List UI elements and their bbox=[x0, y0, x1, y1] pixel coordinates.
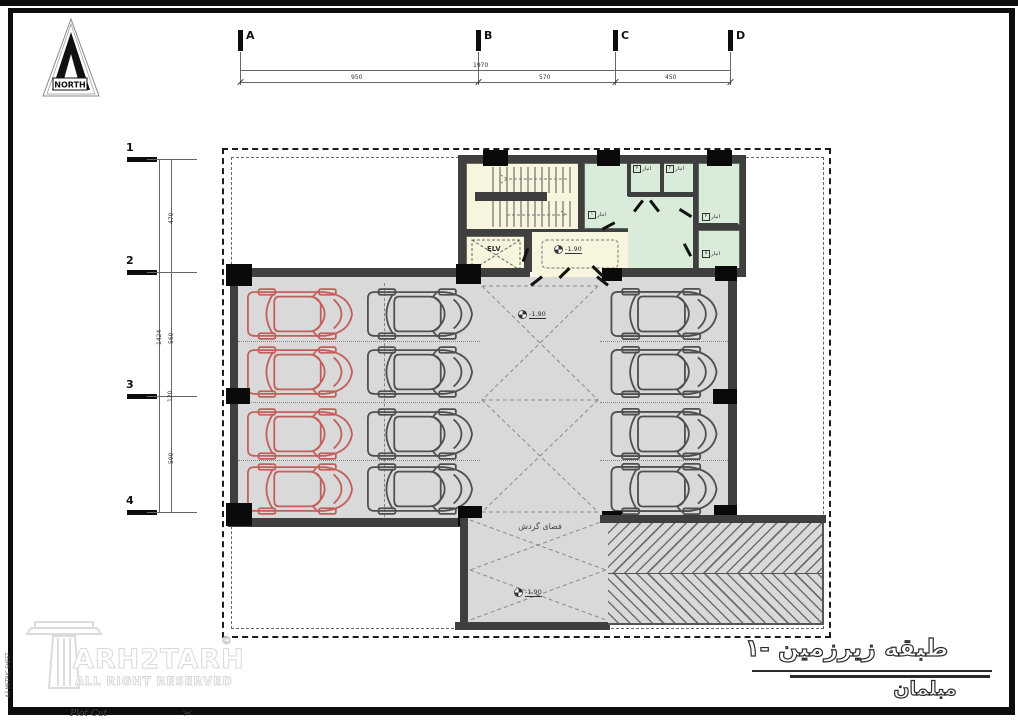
circulation-west-wall bbox=[460, 518, 468, 630]
north-label: NORTH bbox=[54, 81, 85, 90]
stair-handrail bbox=[475, 192, 547, 201]
grid-letter-c: C bbox=[621, 29, 629, 42]
storage-room-label: انبار ۳ bbox=[666, 165, 684, 173]
dim-seg-ab: 950 bbox=[351, 74, 362, 81]
dim-minor: 120 bbox=[167, 391, 174, 402]
grid-number-1: 1 bbox=[126, 141, 134, 154]
car-red bbox=[244, 408, 356, 460]
copyright-icon: © bbox=[221, 634, 232, 647]
storage-room-number: ۴ bbox=[702, 213, 710, 221]
storage-room-number: ۵ bbox=[702, 250, 710, 258]
level-marker-circulation: -1.90 bbox=[514, 588, 542, 597]
sheet-top-strip bbox=[0, 0, 1018, 6]
circulation-label: فضای گردش bbox=[500, 522, 580, 531]
dim-seg-cd: 450 bbox=[665, 74, 676, 81]
storage-room-label: انبار ۲ bbox=[633, 165, 651, 173]
ext-line bbox=[147, 159, 197, 160]
drawing-sheet: Plot Cut ✂ A3 METRIC SHEET NORTH A B C D… bbox=[0, 0, 1018, 720]
watermark: ARH2TARH © ALL RIGHT RESERVED bbox=[25, 612, 255, 696]
column bbox=[456, 264, 481, 284]
core-west-wall bbox=[458, 155, 466, 277]
car-red bbox=[244, 346, 356, 398]
level-marker-lobby: -1.90 bbox=[554, 245, 582, 254]
north-arrow: NORTH bbox=[40, 16, 102, 100]
level-value: -1.90 bbox=[565, 245, 582, 254]
storage-room-name: انبار bbox=[597, 212, 606, 218]
storage-room-label: انبار ۵ bbox=[702, 250, 720, 258]
scissors-icon: ✂ bbox=[183, 707, 192, 720]
level-marker-aisle: -1.90 bbox=[518, 310, 546, 319]
level-icon bbox=[518, 310, 527, 319]
grid-marker-bar-a bbox=[238, 30, 243, 51]
column bbox=[597, 150, 620, 166]
grid-number-2: 2 bbox=[126, 254, 134, 267]
car-gray bbox=[605, 346, 723, 398]
car-gray bbox=[605, 463, 723, 515]
stair-room bbox=[466, 163, 580, 231]
garage-north-wall-left bbox=[230, 268, 530, 277]
ext-line bbox=[147, 272, 197, 273]
dim-seg-23: 560 bbox=[168, 333, 175, 344]
garage-south-wall bbox=[228, 518, 480, 527]
column bbox=[707, 150, 732, 166]
storage-room-name: انبار bbox=[711, 214, 720, 220]
dim-seg-bc: 570 bbox=[539, 74, 550, 81]
car-gray bbox=[364, 408, 476, 460]
storage-room-number: ۱ bbox=[588, 211, 596, 219]
wall bbox=[698, 223, 738, 230]
ramp-hatch-upper bbox=[608, 523, 822, 574]
column bbox=[713, 389, 737, 404]
ramp-hatch-lower bbox=[608, 574, 822, 623]
level-value: -1.90 bbox=[529, 310, 546, 319]
storage-room-label: انبار ۱ bbox=[588, 211, 606, 219]
dim-total-left: 1424 bbox=[156, 330, 163, 345]
grid-marker-bar-c bbox=[613, 30, 618, 51]
storage-room-name: انبار bbox=[711, 251, 720, 257]
storage-room-name: انبار bbox=[642, 166, 651, 172]
ext-line bbox=[147, 512, 197, 513]
car-gray bbox=[364, 346, 476, 398]
watermark-tagline: ALL RIGHT RESERVED bbox=[75, 674, 233, 688]
circulation-space bbox=[468, 518, 608, 622]
level-value: -1.90 bbox=[525, 588, 542, 597]
grid-marker-bar-d bbox=[728, 30, 733, 51]
column bbox=[226, 264, 252, 286]
sheet-side-note: A3 METRIC SHEET bbox=[6, 652, 12, 697]
storage-room-label: انبار ۴ bbox=[702, 213, 720, 221]
car-gray bbox=[605, 288, 723, 340]
column bbox=[226, 388, 250, 404]
storage-room-number: ۲ bbox=[633, 165, 641, 173]
circulation-south-wall bbox=[455, 622, 610, 630]
dim-line-total bbox=[240, 70, 730, 71]
sheet-subtitle: مبلمان bbox=[860, 678, 990, 700]
storage-room-number: ۳ bbox=[666, 165, 674, 173]
car-red bbox=[244, 288, 356, 340]
dim-seg-34: 590 bbox=[168, 453, 175, 464]
column bbox=[602, 268, 622, 281]
dim-total-top: 1970 bbox=[473, 62, 488, 69]
grid-letter-b: B bbox=[484, 29, 492, 42]
car-red bbox=[244, 463, 356, 515]
ramp bbox=[608, 523, 824, 625]
grid-number-4: 4 bbox=[126, 494, 134, 507]
sheet-title: طبقه زیرزمین -۱ bbox=[745, 634, 993, 662]
watermark-brand: ARH2TARH bbox=[73, 644, 245, 675]
storage-room-1 bbox=[584, 163, 629, 229]
ramp-north-wall bbox=[600, 515, 826, 523]
level-icon bbox=[554, 245, 563, 254]
grid-letter-d: D bbox=[736, 29, 745, 42]
car-gray bbox=[605, 408, 723, 460]
column bbox=[715, 266, 737, 281]
storage-room-name: انبار bbox=[675, 166, 684, 172]
title-underline-1 bbox=[752, 670, 992, 672]
grid-letter-a: A bbox=[246, 29, 255, 42]
column bbox=[226, 503, 252, 526]
grid-number-3: 3 bbox=[126, 378, 134, 391]
wall bbox=[628, 192, 694, 197]
dim-seg-12: 470 bbox=[168, 213, 175, 224]
column bbox=[483, 150, 508, 166]
dim-line-segments bbox=[240, 82, 730, 83]
elevator-label: ELV bbox=[487, 245, 501, 253]
plot-cut-label: Plot Cut bbox=[70, 709, 107, 719]
level-icon bbox=[514, 588, 523, 597]
grid-marker-bar-b bbox=[476, 30, 481, 51]
car-gray bbox=[364, 288, 476, 340]
